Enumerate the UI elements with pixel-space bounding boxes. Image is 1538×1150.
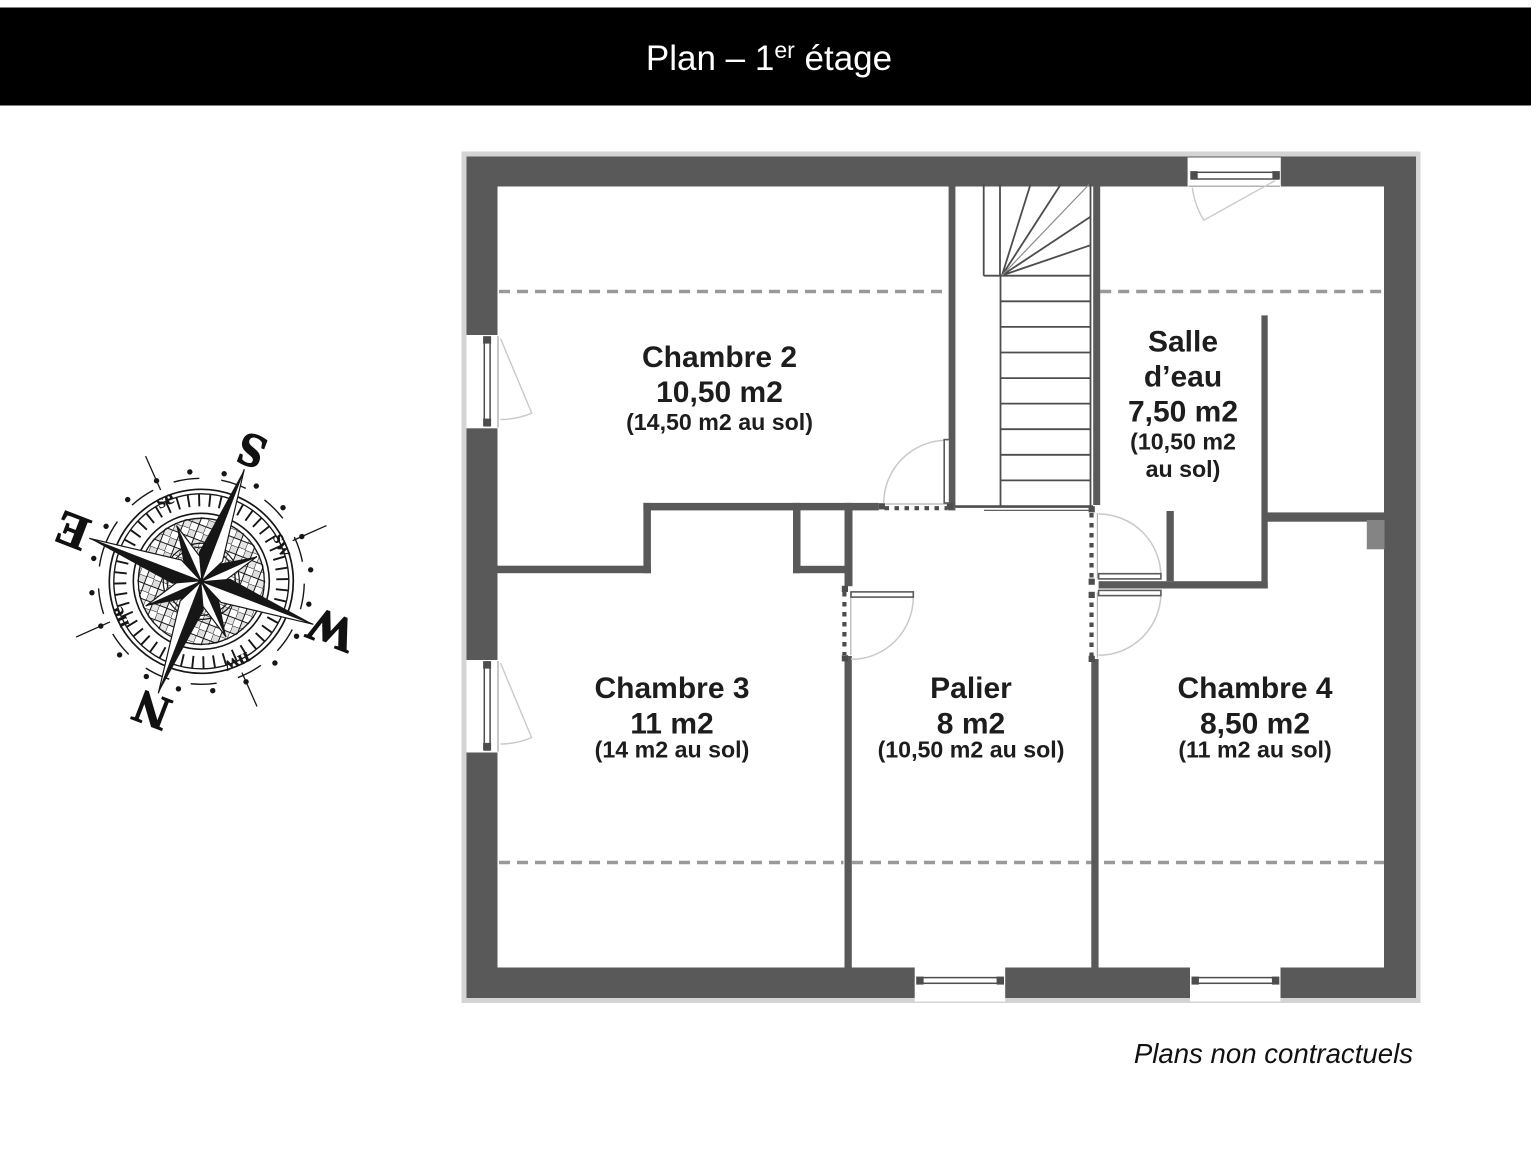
svg-text:Chambre 2: Chambre 2 xyxy=(642,341,797,374)
svg-text:7,50 m2: 7,50 m2 xyxy=(1128,396,1238,429)
svg-text:(14,50 m2 au sol): (14,50 m2 au sol) xyxy=(626,409,813,435)
svg-text:Chambre 4: Chambre 4 xyxy=(1177,672,1332,705)
svg-text:(10,50 m2 au sol): (10,50 m2 au sol) xyxy=(878,737,1065,763)
svg-text:Plans non contractuels: Plans non contractuels xyxy=(1134,1038,1413,1069)
svg-text:Salle: Salle xyxy=(1148,326,1218,359)
svg-text:Plan – 1er étage: Plan – 1er étage xyxy=(646,37,892,78)
svg-text:au sol): au sol) xyxy=(1146,456,1221,482)
svg-text:Palier: Palier xyxy=(930,672,1012,705)
svg-text:(11 m2 au sol): (11 m2 au sol) xyxy=(1178,737,1331,763)
svg-text:10,50 m2: 10,50 m2 xyxy=(656,376,783,409)
svg-text:(14 m2 au sol): (14 m2 au sol) xyxy=(595,737,750,763)
svg-text:(10,50 m2: (10,50 m2 xyxy=(1130,429,1236,455)
svg-text:Chambre 3: Chambre 3 xyxy=(594,672,749,705)
svg-text:d’eau: d’eau xyxy=(1144,361,1222,394)
